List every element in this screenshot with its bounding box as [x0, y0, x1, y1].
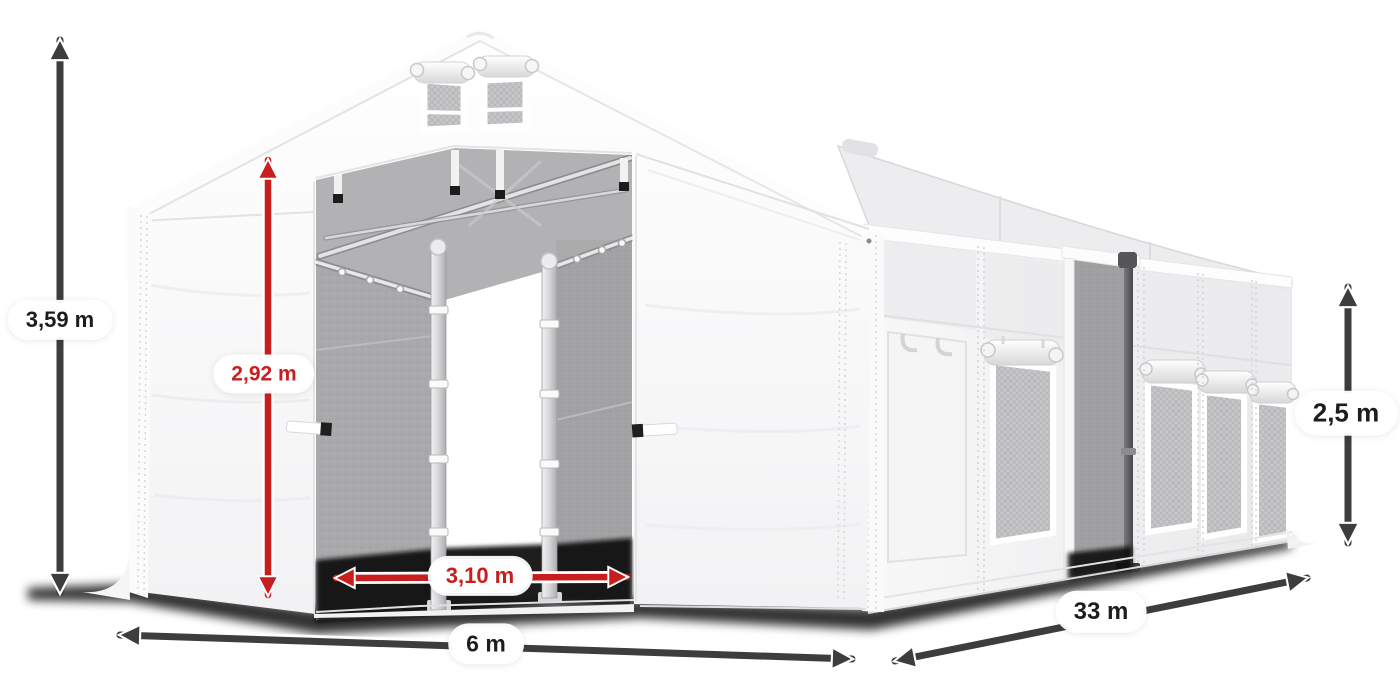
tent-illustration: [0, 0, 1400, 700]
side-door-opening: [1062, 246, 1140, 580]
door-width-label: 3,10 m: [431, 559, 530, 593]
width-label: 6 m: [451, 626, 521, 661]
side-window: [1248, 382, 1299, 540]
tent-dimension-diagram: 3,59 m 2,92 m 3,10 m 6 m 33 m 2,5 m: [0, 0, 1400, 700]
side-wall: [838, 138, 1318, 614]
side-door-panel: [888, 332, 966, 562]
gable-vent-window-right: [474, 56, 539, 128]
side-window: [1140, 360, 1207, 532]
total-height-label: 3,59 m: [11, 303, 110, 337]
side-height-label: 2,5 m: [1298, 394, 1395, 433]
front-gable: [82, 28, 872, 618]
door-height-label: 2,92 m: [216, 357, 311, 390]
front-door-opening: [316, 148, 632, 622]
side-window: [981, 336, 1063, 542]
length-label: 33 m: [1059, 594, 1144, 630]
